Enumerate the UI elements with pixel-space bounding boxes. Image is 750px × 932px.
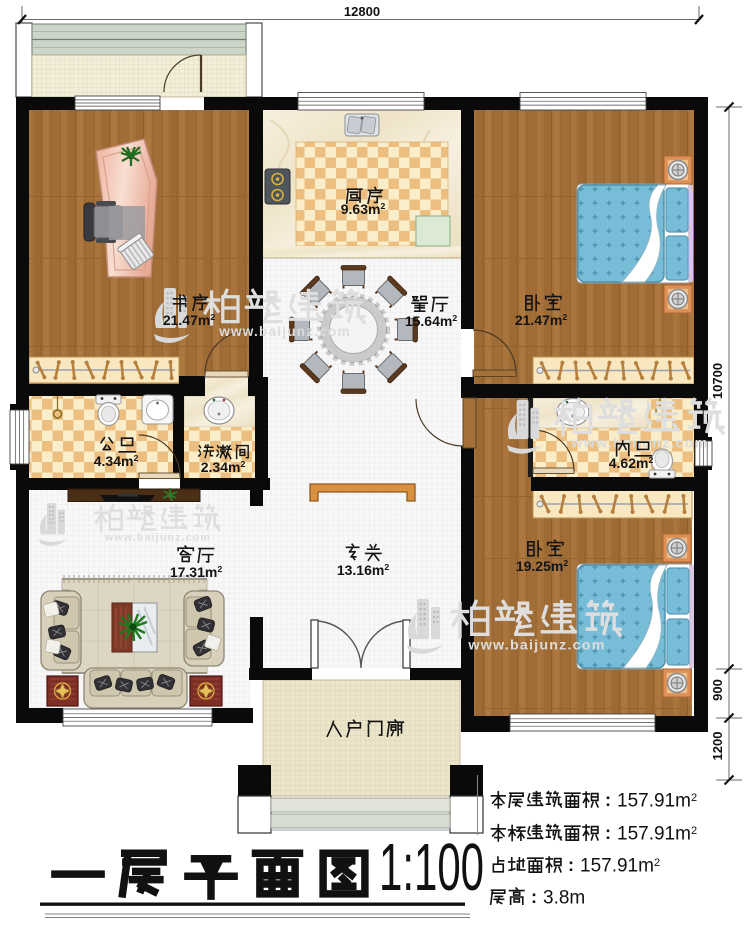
svg-text:13.16m2: 13.16m2 (337, 562, 389, 578)
svg-text:9.63m2: 9.63m2 (341, 201, 386, 217)
svg-text:1200: 1200 (710, 732, 725, 761)
svg-text::: : (605, 823, 611, 843)
svg-text::: : (531, 887, 537, 907)
svg-text:1:100: 1:100 (379, 830, 484, 905)
svg-text::: : (605, 790, 611, 810)
svg-text:157.91m2: 157.91m2 (617, 824, 697, 845)
svg-text:4.62m2: 4.62m2 (609, 455, 654, 471)
svg-text:www.baijunz.com: www.baijunz.com (218, 324, 351, 339)
svg-text:21.47m2: 21.47m2 (515, 312, 567, 328)
svg-text:4.34m2: 4.34m2 (94, 453, 139, 469)
svg-text:15.64m2: 15.64m2 (405, 313, 457, 329)
svg-text:17.31m2: 17.31m2 (170, 564, 222, 580)
svg-text:21.47m2: 21.47m2 (163, 312, 215, 328)
svg-text:157.91m2: 157.91m2 (617, 791, 697, 812)
svg-text::: : (568, 855, 574, 875)
svg-text:10700: 10700 (710, 363, 725, 399)
svg-text:12800: 12800 (344, 4, 380, 19)
svg-text:3.8m: 3.8m (543, 888, 585, 909)
svg-text:2.34m2: 2.34m2 (201, 459, 246, 475)
svg-text:www.baijunz.com: www.baijunz.com (467, 637, 605, 653)
svg-text:900: 900 (710, 679, 725, 701)
svg-text:157.91m2: 157.91m2 (580, 856, 660, 877)
svg-text:19.25m2: 19.25m2 (516, 558, 568, 574)
svg-text:www.baijunz.com: www.baijunz.com (104, 532, 211, 544)
